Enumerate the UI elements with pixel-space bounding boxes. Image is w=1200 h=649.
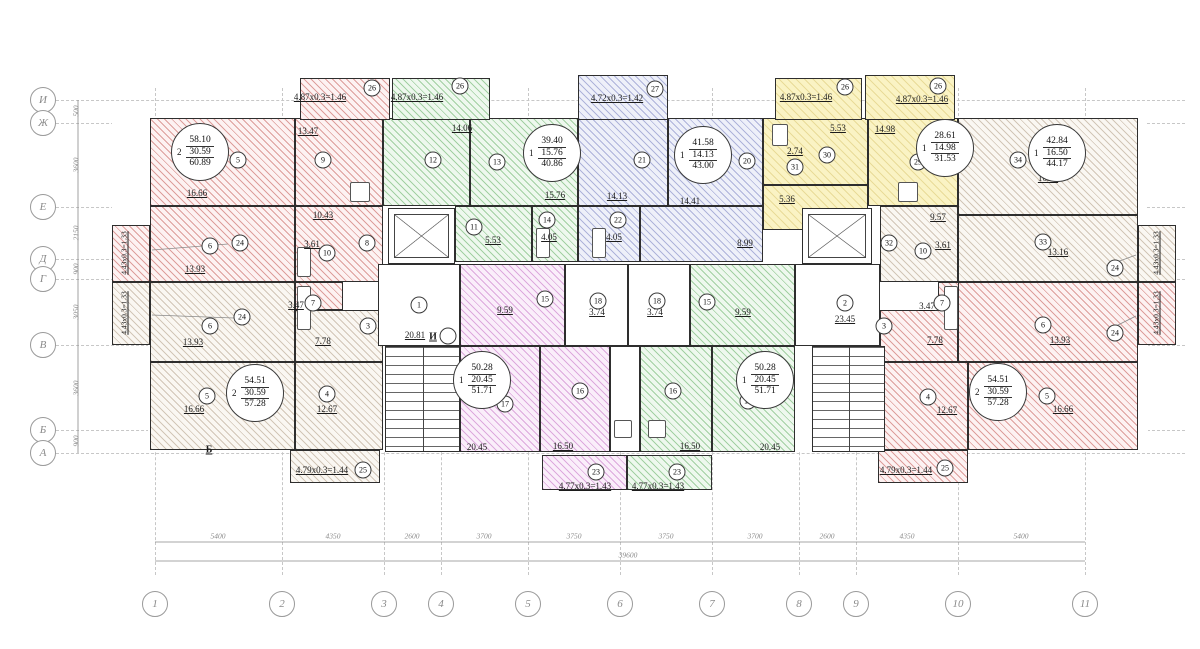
room-mark xyxy=(440,328,457,345)
apartment-room-count: 1 xyxy=(1034,148,1039,158)
area-label: 16.66 xyxy=(187,188,207,198)
apartment-total-area: 50.28 xyxy=(751,363,778,375)
room-mark: 26 xyxy=(452,78,469,95)
room-mark: 7 xyxy=(305,295,322,312)
area-label: 4.05 xyxy=(606,232,622,242)
apartment-total-area: 50.28 xyxy=(468,363,495,375)
area-label: 12.67 xyxy=(937,405,957,415)
room-mark: 4 xyxy=(319,386,336,403)
room-mark: 33 xyxy=(1035,234,1052,251)
room-mark: 16 xyxy=(665,383,682,400)
axis-circle-bottom: 3 xyxy=(371,591,397,617)
area-label: 14.13 xyxy=(607,191,627,201)
dimension-label: 2600 xyxy=(820,532,835,541)
area-label: 4.43х0.3=1.33 xyxy=(120,231,129,275)
apartment-room-count: 2 xyxy=(975,387,980,397)
room-mark: 5 xyxy=(1039,388,1056,405)
dimension-label: 3750 xyxy=(567,532,582,541)
room-mark: 24 xyxy=(1107,325,1124,342)
room-mark: 34 xyxy=(1010,152,1027,169)
dimension-label: 3600 xyxy=(72,381,81,396)
area-label: 5.53 xyxy=(830,123,846,133)
area-label: 3.61 xyxy=(935,240,951,250)
area-label: 4.77х0.3=1.43 xyxy=(559,481,611,491)
room-mark: 7 xyxy=(934,295,951,312)
area-label: 4.43х0.3=1.33 xyxy=(1152,231,1161,275)
area-label: 15.76 xyxy=(545,190,565,200)
apartment-living-area: 14.98 xyxy=(931,143,958,155)
apartment-total-area: 28.61 xyxy=(931,131,958,143)
room-mark: 24 xyxy=(232,235,249,252)
axis-circle-bottom: 9 xyxy=(843,591,869,617)
apartment-stamp: 54.5130.5957.282 xyxy=(969,363,1027,421)
dimension-label: 4350 xyxy=(900,532,915,541)
area-label: 16.50 xyxy=(680,441,700,451)
axis-circle-bottom: 11 xyxy=(1072,591,1098,617)
apartment-area-with-balcony: 40.86 xyxy=(541,159,562,170)
area-label: 2.74 xyxy=(787,146,803,156)
room-mark: 6 xyxy=(1035,317,1052,334)
axis-circle-left: В xyxy=(30,332,56,358)
apartment-area-with-balcony: 57.28 xyxy=(244,399,265,410)
axis-circle-left: А xyxy=(30,440,56,466)
area-label: 9.59 xyxy=(735,307,751,317)
area-label: 13.93 xyxy=(185,264,205,274)
axis-circle-left: Е xyxy=(30,194,56,220)
apartment-stamp: 39.4015.7640.861 xyxy=(523,124,581,182)
room-mark: 18 xyxy=(590,293,607,310)
room-mark: 13 xyxy=(489,154,506,171)
apartment-living-area: 14.13 xyxy=(689,150,716,162)
apartment-area-with-balcony: 43.00 xyxy=(692,161,713,172)
area-label: 5.36 xyxy=(779,194,795,204)
room-mark: 2 xyxy=(837,295,854,312)
area-label: 23.45 xyxy=(835,314,855,324)
area-label: 4.87х0.3=1.46 xyxy=(780,92,832,102)
room-mark: 3 xyxy=(876,318,893,335)
axis-circle-left: Г xyxy=(30,266,56,292)
apartment-stamp: 42.8416.5044.171 xyxy=(1028,124,1086,182)
axis-circle-bottom: 2 xyxy=(269,591,295,617)
apartment-area-with-balcony: 57.28 xyxy=(987,398,1008,409)
apartment-stamp: 28.6114.9831.531 xyxy=(916,119,974,177)
area-label: 4.79х0.3=1.44 xyxy=(880,465,932,475)
area-label: 3.47 xyxy=(919,301,935,311)
overall-dimension-label: 39600 xyxy=(619,551,638,560)
area-label: 20.45 xyxy=(760,442,780,452)
area-label: 5.53 xyxy=(485,235,501,245)
room-mark: 23 xyxy=(588,464,605,481)
apartment-stamp: 50.2820.4551.711 xyxy=(453,351,511,409)
room-mark: 1 xyxy=(411,297,428,314)
room-mark: 26 xyxy=(930,78,947,95)
apartment-living-area: 30.59 xyxy=(186,147,213,159)
apartment-room-count: 2 xyxy=(232,388,237,398)
apartment-living-area: 16.50 xyxy=(1043,148,1070,160)
apartment-stamp: 54.5130.5957.282 xyxy=(226,364,284,422)
apartment-total-area: 42.84 xyxy=(1043,136,1070,148)
axis-circle-bottom: 4 xyxy=(428,591,454,617)
area-label: 4.79х0.3=1.44 xyxy=(296,465,348,475)
apartment-living-area: 15.76 xyxy=(538,148,565,160)
area-label: 16.66 xyxy=(1053,404,1073,414)
room-mark: 3 xyxy=(360,318,377,335)
apartment-area-with-balcony: 51.71 xyxy=(754,386,775,397)
area-label: 16.66 xyxy=(184,404,204,414)
apartment-total-area: 54.51 xyxy=(984,375,1011,387)
dimension-label: 900 xyxy=(72,435,81,446)
room-mark: 6 xyxy=(202,318,219,335)
area-label: 4.87х0.3=1.46 xyxy=(294,92,346,102)
apartment-stamp: 41.5814.1343.001 xyxy=(674,126,732,184)
room-mark: 5 xyxy=(199,388,216,405)
area-label: 4.77х0.3=1.43 xyxy=(632,481,684,491)
apartment-area-with-balcony: 31.53 xyxy=(934,154,955,165)
area-label: 13.93 xyxy=(183,337,203,347)
apartment-area-with-balcony: 51.71 xyxy=(471,386,492,397)
dimension-label: 2150 xyxy=(72,226,81,241)
room-mark: 14 xyxy=(539,212,556,229)
room-mark: 18 xyxy=(649,293,666,310)
axis-circle-bottom: 6 xyxy=(607,591,633,617)
dimension-label: 5400 xyxy=(211,532,226,541)
apartment-stamp: 50.2820.4551.711 xyxy=(736,351,794,409)
apartment-room-count: 1 xyxy=(459,375,464,385)
dimension-label: 5400 xyxy=(1014,532,1029,541)
section-mark-label: И xyxy=(429,332,437,343)
room-mark: 4 xyxy=(920,389,937,406)
room-mark: 22 xyxy=(610,212,627,229)
area-label: 3.47 xyxy=(288,300,304,310)
area-label: 12.67 xyxy=(317,404,337,414)
dimension-label: 3750 xyxy=(659,532,674,541)
apartment-room-count: 1 xyxy=(742,375,747,385)
dimension-label: 3050 xyxy=(72,305,81,320)
apartment-living-area: 30.59 xyxy=(241,388,268,400)
room-mark: 31 xyxy=(787,159,804,176)
area-label: 7.78 xyxy=(927,335,943,345)
room-mark: 8 xyxy=(359,235,376,252)
dimension-label: 500 xyxy=(72,105,81,116)
room-mark: 25 xyxy=(355,462,372,479)
room-mark: 24 xyxy=(1107,260,1124,277)
area-label: 8.99 xyxy=(737,238,753,248)
apartment-room-count: 1 xyxy=(680,150,685,160)
dimension-label: 900 xyxy=(72,263,81,274)
apartment-stamp: 58.1030.5960.892 xyxy=(171,123,229,181)
area-label: 4.43х0.3=1.33 xyxy=(1152,291,1161,335)
dimension-label: 3600 xyxy=(72,158,81,173)
room-mark: 32 xyxy=(881,235,898,252)
area-label: 14.41 xyxy=(680,196,700,206)
area-label: 14.98 xyxy=(875,124,895,134)
dimension-label: 2600 xyxy=(405,532,420,541)
room-mark: 26 xyxy=(837,79,854,96)
area-label: 4.72х0.3=1.42 xyxy=(591,93,643,103)
room-mark: 26 xyxy=(364,80,381,97)
area-label: 9.57 xyxy=(930,212,946,222)
room-mark: 25 xyxy=(937,460,954,477)
axis-circle-bottom: 8 xyxy=(786,591,812,617)
axis-circle-bottom: 1 xyxy=(142,591,168,617)
room-mark: 9 xyxy=(315,152,332,169)
area-label: 4.05 xyxy=(541,232,557,242)
area-label: 20.45 xyxy=(467,442,487,452)
area-label: 3.61 xyxy=(304,239,320,249)
room-mark: 27 xyxy=(647,81,664,98)
room-mark: 15 xyxy=(537,291,554,308)
axis-circle-bottom: 5 xyxy=(515,591,541,617)
axis-circle-left: Ж xyxy=(30,110,56,136)
area-label: 4.87х0.3=1.46 xyxy=(896,94,948,104)
apartment-area-with-balcony: 60.89 xyxy=(189,158,210,169)
area-label: 13.47 xyxy=(298,126,318,136)
apartment-room-count: 1 xyxy=(922,143,927,153)
area-label: 13.93 xyxy=(1050,335,1070,345)
dimension-label: 3700 xyxy=(748,532,763,541)
floor-plan: 16.6613.4714.0615.7614.1314.415.5314.982… xyxy=(0,0,1200,649)
room-mark: 24 xyxy=(234,309,251,326)
dimension-line xyxy=(152,315,234,318)
area-label: 14.06 xyxy=(452,123,472,133)
area-label: 13.16 xyxy=(1048,247,1068,257)
area-label: 4.87х0.3=1.46 xyxy=(391,92,443,102)
apartment-living-area: 20.45 xyxy=(468,375,495,387)
apartment-total-area: 41.58 xyxy=(689,138,716,150)
axis-circle-bottom: 10 xyxy=(945,591,971,617)
apartment-total-area: 39.40 xyxy=(538,136,565,148)
apartment-living-area: 20.45 xyxy=(751,375,778,387)
dimension-label: 4350 xyxy=(326,532,341,541)
dimension-label: 3700 xyxy=(477,532,492,541)
room-mark: 11 xyxy=(466,219,483,236)
section-mark-label: Б xyxy=(206,445,213,456)
room-mark: 23 xyxy=(669,464,686,481)
apartment-total-area: 54.51 xyxy=(241,376,268,388)
area-label: 16.50 xyxy=(553,441,573,451)
room-mark: 16 xyxy=(572,383,589,400)
area-label: 4.43х0.3=1.33 xyxy=(120,291,129,335)
apartment-room-count: 2 xyxy=(177,147,182,157)
area-label: 10.43 xyxy=(313,210,333,220)
apartment-area-with-balcony: 44.17 xyxy=(1046,159,1067,170)
room-mark: 6 xyxy=(202,238,219,255)
room-mark: 5 xyxy=(230,152,247,169)
room-mark: 21 xyxy=(634,152,651,169)
room-mark: 20 xyxy=(739,153,756,170)
area-label: 9.59 xyxy=(497,305,513,315)
room-mark: 30 xyxy=(819,147,836,164)
room-mark: 15 xyxy=(699,294,716,311)
room-mark: 10 xyxy=(319,245,336,262)
area-label: 7.78 xyxy=(315,336,331,346)
apartment-room-count: 1 xyxy=(529,148,534,158)
apartment-living-area: 30.59 xyxy=(984,387,1011,399)
area-label: 20.81 xyxy=(405,330,425,340)
apartment-total-area: 58.10 xyxy=(186,135,213,147)
room-mark: 10 xyxy=(915,243,932,260)
room-mark: 12 xyxy=(425,152,442,169)
axis-circle-bottom: 7 xyxy=(699,591,725,617)
